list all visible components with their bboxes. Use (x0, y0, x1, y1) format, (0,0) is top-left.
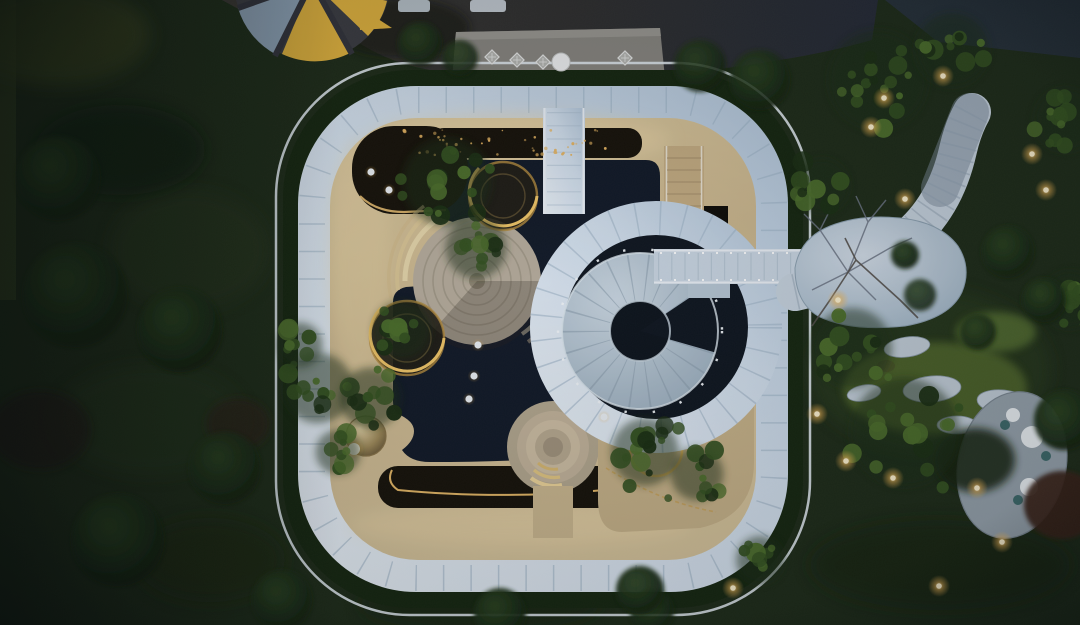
vignette (0, 0, 1080, 625)
aerial-photo (0, 0, 1080, 625)
photo-stage (0, 0, 1080, 625)
